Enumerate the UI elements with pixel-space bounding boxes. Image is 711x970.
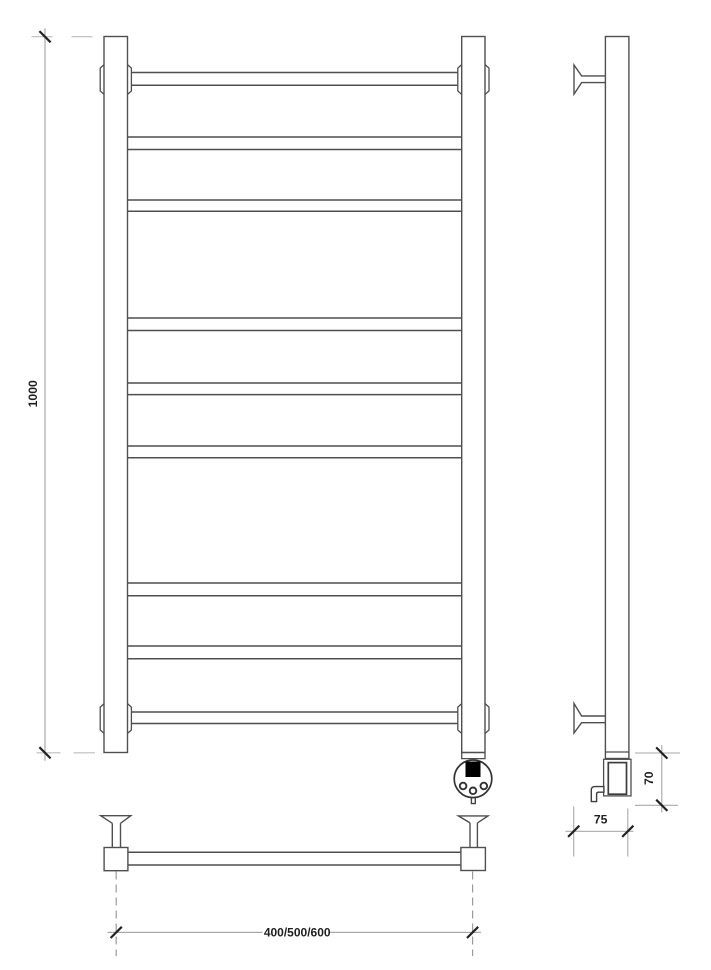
svg-text:75: 75 [594, 812, 608, 826]
svg-text:1000: 1000 [26, 380, 40, 407]
svg-text:400/500/600: 400/500/600 [264, 925, 331, 939]
svg-text:70: 70 [642, 771, 656, 785]
